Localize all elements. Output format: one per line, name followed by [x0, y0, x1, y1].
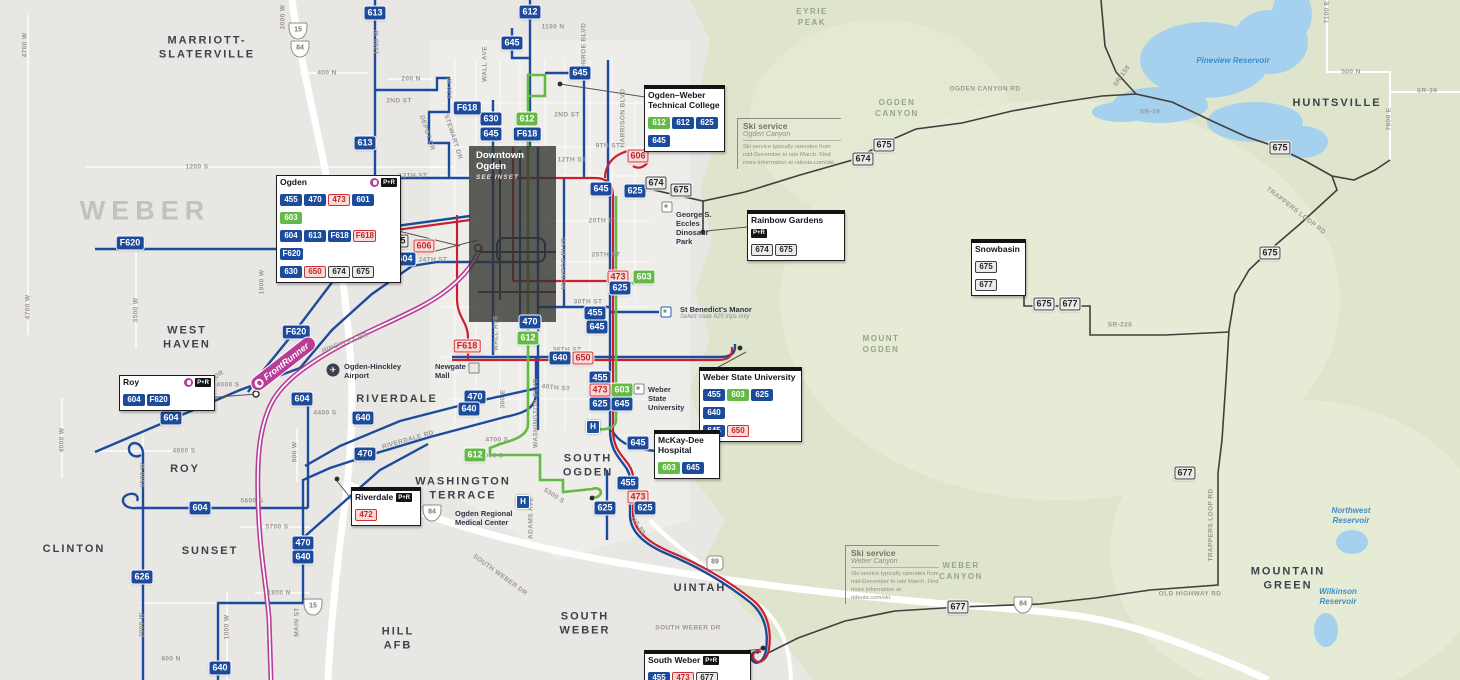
- route-badge-604: 604: [291, 393, 312, 406]
- street-label-trappers-loop-rd: TRAPPERS LOOP RD: [1208, 488, 1215, 561]
- poi-label: Ogden-Hinckley Airport: [344, 362, 401, 380]
- route-badge-612: 612: [464, 449, 485, 462]
- route-badge-603: 603: [280, 212, 302, 224]
- route-badge-455: 455: [584, 307, 605, 320]
- street-label-5300-s: 5300 S: [542, 487, 565, 505]
- route-badge-F618: F618: [454, 340, 481, 353]
- route-badge-645: 645: [480, 128, 501, 141]
- route-badge-455: 455: [703, 389, 725, 401]
- route-badge-645: 645: [590, 183, 611, 196]
- callout-route-list: 675677: [975, 256, 1022, 292]
- route-badge-677: 677: [1174, 467, 1195, 480]
- route-badge-645: 645: [611, 398, 632, 411]
- poi-label: George S. Eccles Dinosaur Park: [676, 210, 711, 246]
- route-badge-674: 674: [328, 266, 350, 278]
- interstate-84-shield: 84: [1014, 597, 1033, 614]
- route-badge-F618: F618: [328, 230, 351, 242]
- route-badge-613: 613: [304, 230, 326, 242]
- street-label-500-n: 500 N: [1341, 69, 1360, 76]
- region-label-weber: WEBER CANYON: [939, 561, 983, 583]
- route-badge-640: 640: [458, 403, 479, 416]
- street-label-south-weber-dr: SOUTH WEBER DR: [655, 625, 721, 632]
- route-badge-613: 613: [354, 137, 375, 150]
- frontrunner-icon: [252, 377, 265, 390]
- street-label-2nd-st: 2ND ST: [386, 98, 412, 105]
- callout-route-list: 455470473601603604613F618F618F6206306506…: [280, 189, 397, 279]
- water-label-pineview-reservoir: Pineview Reservoir: [1196, 56, 1269, 66]
- street-label-sr-158: SR-158: [1112, 64, 1132, 88]
- callout-south-weber: South WeberP+R455473677: [644, 650, 751, 680]
- poi-label: Ogden Regional Medical Center: [455, 509, 513, 527]
- street-label-12th-st: 12TH ST: [399, 173, 428, 180]
- route-badge-470: 470: [292, 537, 313, 550]
- route-badge-625: 625: [696, 117, 718, 129]
- callout-title: Rainbow Gardens: [751, 216, 823, 226]
- street-label-20th-st: 20TH ST: [589, 218, 618, 225]
- street-label-harrison-blvd: HARRISON BLVD: [620, 89, 627, 148]
- route-badge-626: 626: [131, 571, 152, 584]
- park-and-ride-icon: P+R: [396, 493, 412, 502]
- street-label-1800-n: 1800 N: [267, 590, 290, 597]
- street-label-main-st: MAIN ST: [294, 607, 301, 637]
- street-label-900-w: 900 W: [292, 442, 299, 463]
- street-label-4800-s: 4800 S: [172, 448, 195, 455]
- street-label-200-n: 200 N: [401, 76, 420, 83]
- poi-ogden-regional: Ogden Regional Medical Center: [455, 509, 513, 527]
- street-label-40th-st: 40TH ST: [541, 383, 570, 393]
- callout-route-list: 472: [355, 504, 417, 522]
- poi-st-benedict-s-manor: St Benedict's ManorSelect route 625 trip…: [680, 305, 752, 320]
- street-label-us-89: US-89: [629, 516, 646, 537]
- callout-mckay-dee-hospital: McKay-Dee Hospital603645: [654, 430, 720, 479]
- street-label-400-n: 400 N: [317, 70, 336, 77]
- callout-title: Ogden–Weber Technical College: [648, 91, 721, 111]
- callout-roy-station: RoyP+R604F620: [119, 375, 215, 411]
- route-badge-675: 675: [975, 261, 997, 273]
- route-badge-675: 675: [1033, 298, 1054, 311]
- route-badge-645: 645: [569, 67, 590, 80]
- callout-snowbasin: Snowbasin675677: [971, 239, 1026, 296]
- city-label-washington: WASHINGTON TERRACE: [415, 475, 511, 504]
- route-badge-625: 625: [589, 398, 610, 411]
- frontrunner-icon: [184, 378, 193, 387]
- street-label-2nd-st: 2ND ST: [554, 112, 580, 119]
- route-badge-455: 455: [280, 194, 302, 206]
- callout-route-list: 612612625645: [648, 112, 721, 148]
- street-label-7100-e: 7100 E: [1324, 0, 1331, 23]
- callout-title: Snowbasin: [975, 245, 1020, 255]
- interstate-84-shield: 84: [423, 505, 442, 522]
- street-label-7800-e: 7800 E: [1386, 107, 1393, 130]
- callout-title: Riverdale: [355, 493, 393, 503]
- street-label-stewart-dr: STEWART DR: [442, 114, 463, 161]
- stop-gray-icon: [634, 384, 645, 395]
- street-label-3500-w: 3500 W: [133, 298, 140, 323]
- route-badge-677: 677: [947, 601, 968, 614]
- route-badge-625: 625: [624, 185, 645, 198]
- water-label-wilkinson: Wilkinson Reservoir: [1319, 587, 1357, 607]
- stop-blue-icon: [661, 307, 672, 318]
- route-badge-640: 640: [352, 412, 373, 425]
- interstate-84-shield: 84: [291, 41, 310, 58]
- street-label-4000-w: 4000 W: [59, 428, 66, 453]
- route-badge-677: 677: [975, 279, 997, 291]
- ski-service-note-weber-canyon: Ski serviceWeber CanyonSki service typic…: [845, 545, 939, 604]
- street-label-1000-w: 1000 W: [224, 615, 231, 640]
- callout-route-list: 674675: [751, 239, 841, 257]
- street-label-1200-w: 1200 W: [374, 30, 381, 55]
- note-subtitle: Weber Canyon: [851, 558, 939, 568]
- route-badge-603: 603: [658, 462, 680, 474]
- route-badge-604: 604: [160, 412, 181, 425]
- route-badge-F620: F620: [117, 237, 144, 250]
- street-label-2000-w: 2000 W: [139, 613, 146, 638]
- callout-route-list: 603645: [658, 457, 716, 475]
- route-badge-625: 625: [594, 502, 615, 515]
- street-label-5600-s: 5600 S: [240, 498, 263, 505]
- mall-icon: [469, 363, 480, 374]
- stop-gray-icon: [662, 202, 673, 213]
- poi-label: Newgate Mall: [435, 362, 466, 380]
- poi-label: St Benedict's Manor: [680, 305, 752, 314]
- frontrunner-icon: [370, 178, 379, 187]
- interstate-15-shield: 15: [289, 23, 308, 40]
- route-badge-604: 604: [280, 230, 302, 242]
- poi-label: Weber State University: [648, 385, 684, 412]
- route-badge-F618: F618: [514, 128, 541, 141]
- route-badge-604: 604: [123, 394, 145, 406]
- poi-ogden-hinckley: Ogden-Hinckley Airport: [344, 362, 401, 380]
- route-badge-612: 612: [516, 113, 537, 126]
- route-badge-473: 473: [672, 672, 694, 680]
- street-label-riverdale-rd: RIVERDALE RD: [381, 429, 434, 450]
- hospital-icon: H: [516, 495, 530, 509]
- route-badge-675: 675: [1269, 142, 1290, 155]
- ski-service-note-ogden-canyon: Ski serviceOgden CanyonSki service typic…: [737, 118, 841, 169]
- street-label-4000-s: 4000 S: [216, 382, 239, 389]
- callout-title: Roy: [123, 378, 139, 388]
- city-label-mountain: MOUNTAIN GREEN: [1251, 565, 1325, 594]
- park-and-ride-icon: P+R: [703, 656, 719, 665]
- street-label-9th-st: 9TH ST: [596, 143, 621, 150]
- street-label-4700-w: 4700 W: [25, 295, 32, 320]
- poi-sublabel: Select route 625 trips only: [680, 314, 752, 320]
- route-badge-677: 677: [696, 672, 718, 680]
- street-label-ogden-canyon-rd: OGDEN CANYON RD: [949, 86, 1020, 93]
- callout-title: South Weber: [648, 656, 700, 666]
- street-label-300-e: 300 E: [500, 390, 507, 409]
- street-label-sr-39: SR-39: [1140, 109, 1160, 116]
- callout-title: Weber State University: [703, 373, 795, 383]
- city-label-marriott-: MARRIOTT- SLATERVILLE: [159, 34, 255, 63]
- street-label-800-n: 800 N: [161, 656, 180, 663]
- route-badge-F618: F618: [353, 230, 376, 242]
- route-badge-470: 470: [519, 316, 540, 329]
- callout-ogden-weber-technical-college: Ogden–Weber Technical College61261262564…: [644, 85, 725, 152]
- street-label-washington-blvd: WASHINGTON BLVD: [533, 378, 540, 448]
- interstate-15-shield: 15: [304, 599, 323, 616]
- callout-icons: P+R: [370, 178, 397, 187]
- street-label-530-w: 530 W: [447, 78, 454, 99]
- route-badge-603: 603: [727, 389, 749, 401]
- route-badge-473: 473: [328, 194, 350, 206]
- street-label-old-highway-rd: OLD HIGHWAY RD: [1159, 591, 1222, 598]
- route-badge-470: 470: [304, 194, 326, 206]
- callout-icons: P+R: [184, 378, 211, 387]
- route-badge-612: 612: [517, 332, 538, 345]
- street-label-4700-s: 4700 S: [485, 437, 508, 444]
- note-body: Ski service typically operates from mid-…: [743, 143, 841, 167]
- route-badge-604: 604: [189, 502, 210, 515]
- street-label-4700-w: 4700 W: [22, 33, 29, 58]
- city-label-south: SOUTH WEBER: [560, 610, 611, 639]
- city-label-roy: ROY: [170, 462, 200, 476]
- route-badge-640: 640: [292, 551, 313, 564]
- route-badge-630: 630: [480, 113, 501, 126]
- route-badge-612: 612: [519, 6, 540, 19]
- route-badge-645: 645: [586, 321, 607, 334]
- callout-title: McKay-Dee Hospital: [658, 436, 716, 456]
- route-badge-645: 645: [627, 437, 648, 450]
- street-label-sr-226: SR-226: [1108, 322, 1132, 329]
- hospital-icon: H: [586, 420, 600, 434]
- route-badge-625: 625: [634, 502, 655, 515]
- city-label-clinton: CLINTON: [43, 542, 106, 556]
- street-label-1100-n: 1100 N: [541, 24, 564, 31]
- region-label-ogden: OGDEN CANYON: [875, 98, 919, 120]
- note-subtitle: Ogden Canyon: [743, 131, 841, 141]
- route-badge-645: 645: [648, 135, 670, 147]
- route-badge-675: 675: [670, 184, 691, 197]
- route-badge-630: 630: [280, 266, 302, 278]
- route-badge-640: 640: [209, 662, 230, 675]
- street-label-wall-ave: WALL AVE: [482, 46, 489, 82]
- region-label-mount: MOUNT OGDEN: [863, 334, 900, 356]
- route-badge-675: 675: [1259, 247, 1280, 260]
- street-label-trappers-loop-rd: TRAPPERS LOOP RD: [1265, 186, 1327, 237]
- city-label-west: WEST HAVEN: [163, 324, 211, 353]
- route-badge-613: 613: [364, 7, 385, 20]
- street-label-1900-w: 1900 W: [259, 270, 266, 295]
- street-label-wall-ave: WALL AVE: [493, 315, 500, 351]
- route-badge-603: 603: [611, 384, 632, 397]
- street-label-4400-s: 4400 S: [313, 410, 336, 417]
- route-badge-677: 677: [1059, 298, 1080, 311]
- route-badge-675: 675: [873, 139, 894, 152]
- street-label-depot-dr: DEPOT DR: [418, 114, 436, 151]
- street-label-5700-s: 5700 S: [265, 524, 288, 531]
- street-label-25th-st: 25TH ST: [592, 252, 621, 259]
- us-89-shield: 89: [707, 556, 724, 571]
- poi-weber: Weber State University: [648, 385, 684, 412]
- city-label-uintah: UINTAH: [674, 581, 727, 595]
- map-annotation-layer: WEBERMARRIOTT- SLATERVILLEWEST HAVENROYC…: [0, 0, 1460, 680]
- street-label-2000-w: 2000 W: [280, 5, 287, 30]
- water-label-northwest: Northwest Reservoir: [1331, 506, 1370, 526]
- route-badge-640: 640: [549, 352, 570, 365]
- city-label-riverdale: RIVERDALE: [356, 392, 438, 406]
- route-badge-601: 601: [352, 194, 374, 206]
- note-body: Ski service typically operates from mid-…: [851, 570, 939, 602]
- airplane-icon: ✈: [327, 364, 340, 377]
- route-badge-650: 650: [304, 266, 326, 278]
- street-label-12th-st: 12TH ST: [558, 157, 587, 164]
- route-badge-470: 470: [354, 448, 375, 461]
- poi-george-s-: George S. Eccles Dinosaur Park: [676, 210, 711, 246]
- callout-riverdale: RiverdaleP+R472: [351, 487, 421, 526]
- street-label-1200-s: 1200 S: [185, 164, 208, 171]
- route-badge-675: 675: [352, 266, 374, 278]
- transit-map-canvas: Downtown Ogden SEE INSET FrontRunner WEB…: [0, 0, 1460, 680]
- route-badge-650: 650: [572, 352, 593, 365]
- county-label-weber: WEBER: [80, 196, 211, 227]
- street-label-30th-st: 30TH ST: [574, 299, 603, 306]
- route-badge-674: 674: [751, 244, 773, 256]
- route-badge-612: 612: [648, 117, 670, 129]
- route-badge-625: 625: [751, 389, 773, 401]
- route-badge-674: 674: [852, 153, 873, 166]
- callout-rainbow-gardens: Rainbow GardensP+R674675: [747, 210, 845, 261]
- route-badge-F620: F620: [147, 394, 170, 406]
- city-label-hill: HILL AFB: [382, 625, 414, 654]
- note-title: Ski service: [743, 121, 841, 131]
- park-and-ride-icon: P+R: [195, 378, 211, 387]
- route-badge-674: 674: [645, 177, 666, 190]
- park-and-ride-icon: P+R: [751, 229, 767, 238]
- route-badge-640: 640: [703, 407, 725, 419]
- street-label-3500-w: 3500 W: [140, 463, 147, 488]
- route-badge-675: 675: [775, 244, 797, 256]
- callout-title: Ogden: [280, 178, 307, 188]
- route-badge-612: 612: [672, 117, 694, 129]
- street-label-sr-39: SR-39: [1417, 88, 1437, 95]
- callout-route-list: 604F620: [123, 389, 211, 407]
- route-badge-645: 645: [501, 37, 522, 50]
- street-label-monroe-blvd: MONROE BLVD: [561, 237, 568, 290]
- callout-ogden-station: OgdenP+R455470473601603604613F618F618F62…: [276, 175, 401, 283]
- street-label-hinckley-dr: HINCKLEY DR: [321, 331, 369, 354]
- route-badge-455: 455: [617, 477, 638, 490]
- city-label-south: SOUTH OGDEN: [563, 452, 613, 481]
- route-badge-650: 650: [727, 425, 749, 437]
- park-and-ride-icon: P+R: [381, 178, 397, 187]
- route-badge-625: 625: [609, 282, 630, 295]
- callout-route-list: 455473677: [648, 667, 747, 680]
- street-label-24th-st: 24TH ST: [419, 257, 448, 264]
- region-label-eyrie: EYRIE PEAK: [796, 7, 828, 29]
- route-badge-472: 472: [355, 509, 377, 521]
- route-badge-606: 606: [413, 240, 434, 253]
- route-badge-603: 603: [633, 271, 654, 284]
- city-label-huntsville: HUNTSVILLE: [1292, 96, 1381, 110]
- route-badge-F618: F618: [454, 102, 481, 115]
- poi-newgate: Newgate Mall: [435, 362, 466, 380]
- route-badge-473: 473: [589, 384, 610, 397]
- note-title: Ski service: [851, 548, 939, 558]
- street-label-south-weber-dr: SOUTH WEBER DR: [471, 553, 528, 597]
- route-badge-F620: F620: [280, 248, 303, 260]
- route-badge-645: 645: [682, 462, 704, 474]
- route-badge-455: 455: [648, 672, 670, 680]
- city-label-sunset: SUNSET: [182, 544, 239, 558]
